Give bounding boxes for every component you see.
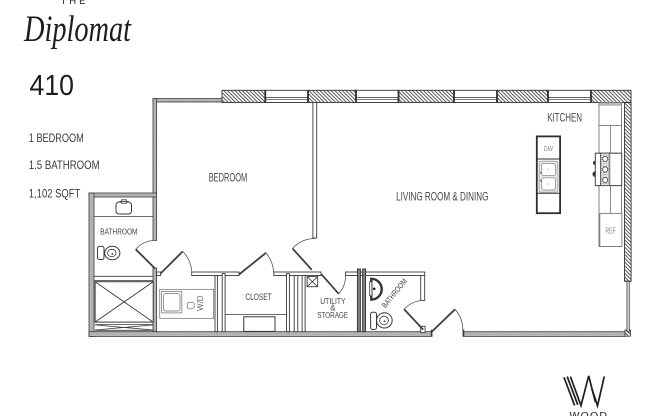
svg-text:KITCHEN: KITCHEN (547, 111, 582, 125)
svg-text:STORAGE: STORAGE (317, 311, 348, 320)
svg-text:BATHROOM: BATHROOM (100, 227, 137, 236)
svg-text:W/D: W/D (196, 295, 205, 311)
svg-text:REF: REF (605, 227, 615, 236)
svg-text:CLOSET: CLOSET (245, 292, 271, 302)
svg-text:BATHROOM: BATHROOM (380, 277, 409, 310)
svg-text:1 BEDROOM: 1 BEDROOM (29, 131, 84, 145)
svg-text:BEDROOM: BEDROOM (209, 171, 248, 185)
svg-text:Diplomat: Diplomat (23, 9, 132, 50)
svg-text:1,102 SQFT: 1,102 SQFT (29, 186, 81, 200)
svg-text:DW: DW (544, 146, 554, 153)
svg-text:THE: THE (61, 0, 89, 7)
svg-text:410: 410 (30, 70, 75, 102)
svg-text:WOOD: WOOD (569, 410, 608, 416)
svg-text:LIVING ROOM & DINING: LIVING ROOM & DINING (396, 190, 488, 204)
svg-text:1.5 BATHROOM: 1.5 BATHROOM (29, 158, 100, 172)
